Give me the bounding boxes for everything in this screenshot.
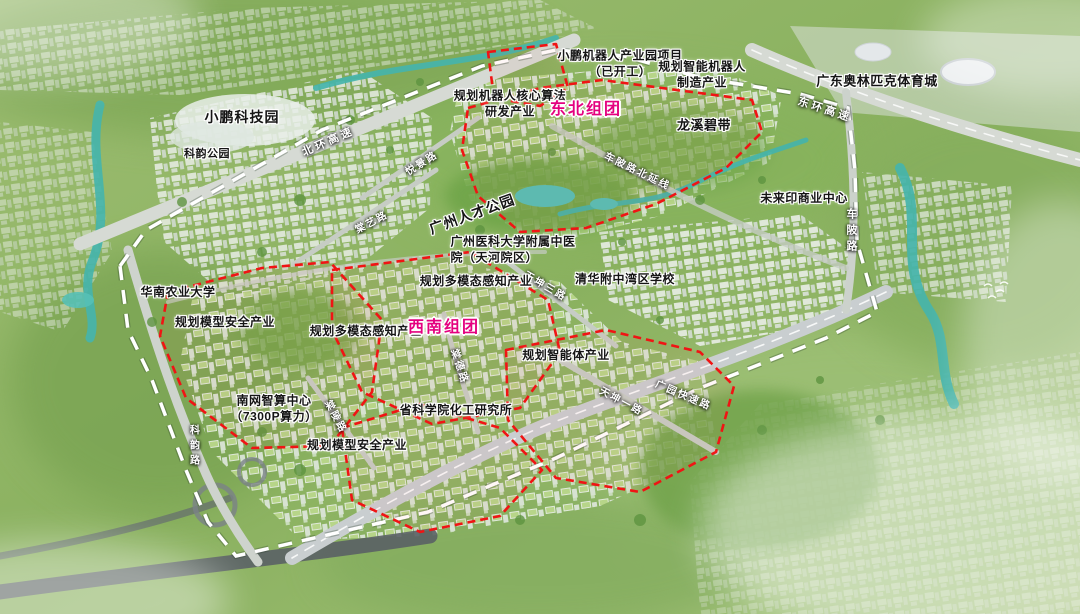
map-illustration	[0, 0, 1080, 614]
label-northeast-cluster: 东北组团	[550, 95, 622, 119]
aerial-planning-map: 小鹏科技园 科韵公园 广州人才公园 广东奥林匹克体育城 龙溪碧带 未来印商业中心…	[0, 0, 1080, 614]
road-label-chebei-road: 车陂路	[843, 208, 859, 256]
label-southwest-cluster: 西南组团	[408, 313, 480, 337]
road-label-keyun-road: 科韵路	[186, 425, 201, 470]
